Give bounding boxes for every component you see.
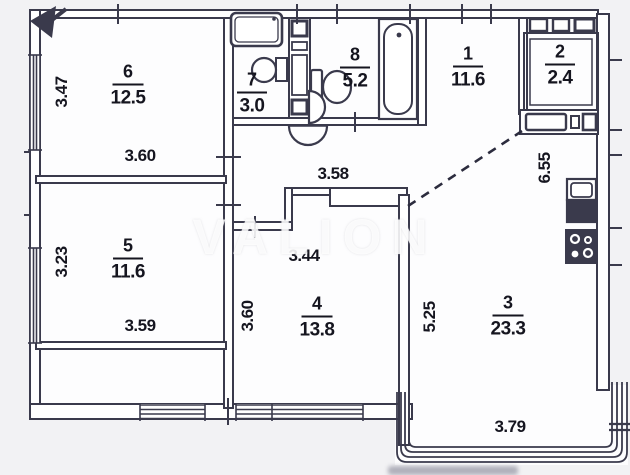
stove-icon: [566, 230, 596, 263]
room-2-area: 2.4: [545, 66, 575, 88]
room-3-number: 3: [493, 294, 523, 317]
room-7-area: 3.0: [237, 94, 267, 116]
top-cabinets: [530, 19, 594, 31]
room-8-label: 8 5.2: [340, 46, 370, 91]
washing-machine-icon: [231, 13, 282, 46]
room-6-area: 12.5: [111, 86, 146, 108]
dim-3-47: 3.47: [53, 76, 71, 107]
dim-5-25: 5.25: [421, 301, 439, 332]
floor-plan: 6 12.5 7 3.0 8 5.2 1 11.6 2 2.4 5 11.6 4…: [0, 0, 630, 475]
room-6-label: 6 12.5: [111, 63, 146, 108]
valion-watermark: VALION: [192, 208, 437, 266]
room-6-number: 6: [113, 63, 143, 86]
room-7-label: 7 3.0: [237, 71, 267, 116]
dim-3-60b: 3.60: [239, 300, 257, 331]
room-2-label: 2 2.4: [545, 43, 575, 88]
dim-3-79: 3.79: [494, 418, 525, 436]
room-8-area: 5.2: [340, 69, 370, 91]
room-5-number: 5: [113, 237, 143, 260]
room-1-area: 11.6: [451, 68, 485, 90]
bottom-stamp-smudge: [388, 466, 518, 475]
window-room4: [236, 404, 363, 419]
window-room6: [30, 55, 40, 150]
dim-3-60a: 3.60: [124, 147, 155, 165]
dim-3-23: 3.23: [53, 246, 71, 277]
room-4-number: 4: [302, 295, 332, 318]
room-3-label: 3 23.3: [491, 294, 526, 339]
vent-shaft: [292, 21, 307, 114]
window-bottom-left: [140, 404, 205, 419]
room-4-label: 4 13.8: [300, 295, 335, 340]
dim-6-55: 6.55: [536, 152, 554, 183]
bathtub-icon: [379, 19, 417, 119]
dim-3-58: 3.58: [317, 165, 348, 183]
counter-items: [526, 114, 596, 130]
room-4-area: 13.8: [300, 318, 335, 340]
room-5-area: 11.6: [111, 260, 145, 282]
room-8-number: 8: [340, 46, 370, 69]
room-7-number: 7: [237, 71, 267, 94]
window-room5: [30, 248, 40, 343]
room-2-number: 2: [545, 43, 575, 66]
room-5-label: 5 11.6: [111, 237, 145, 282]
dim-3-59: 3.59: [124, 317, 155, 335]
kitchen-sink-icon: [567, 179, 596, 222]
room-1-number: 1: [453, 45, 483, 68]
room-1-label: 1 11.6: [451, 45, 485, 90]
room-3-area: 23.3: [491, 317, 526, 339]
